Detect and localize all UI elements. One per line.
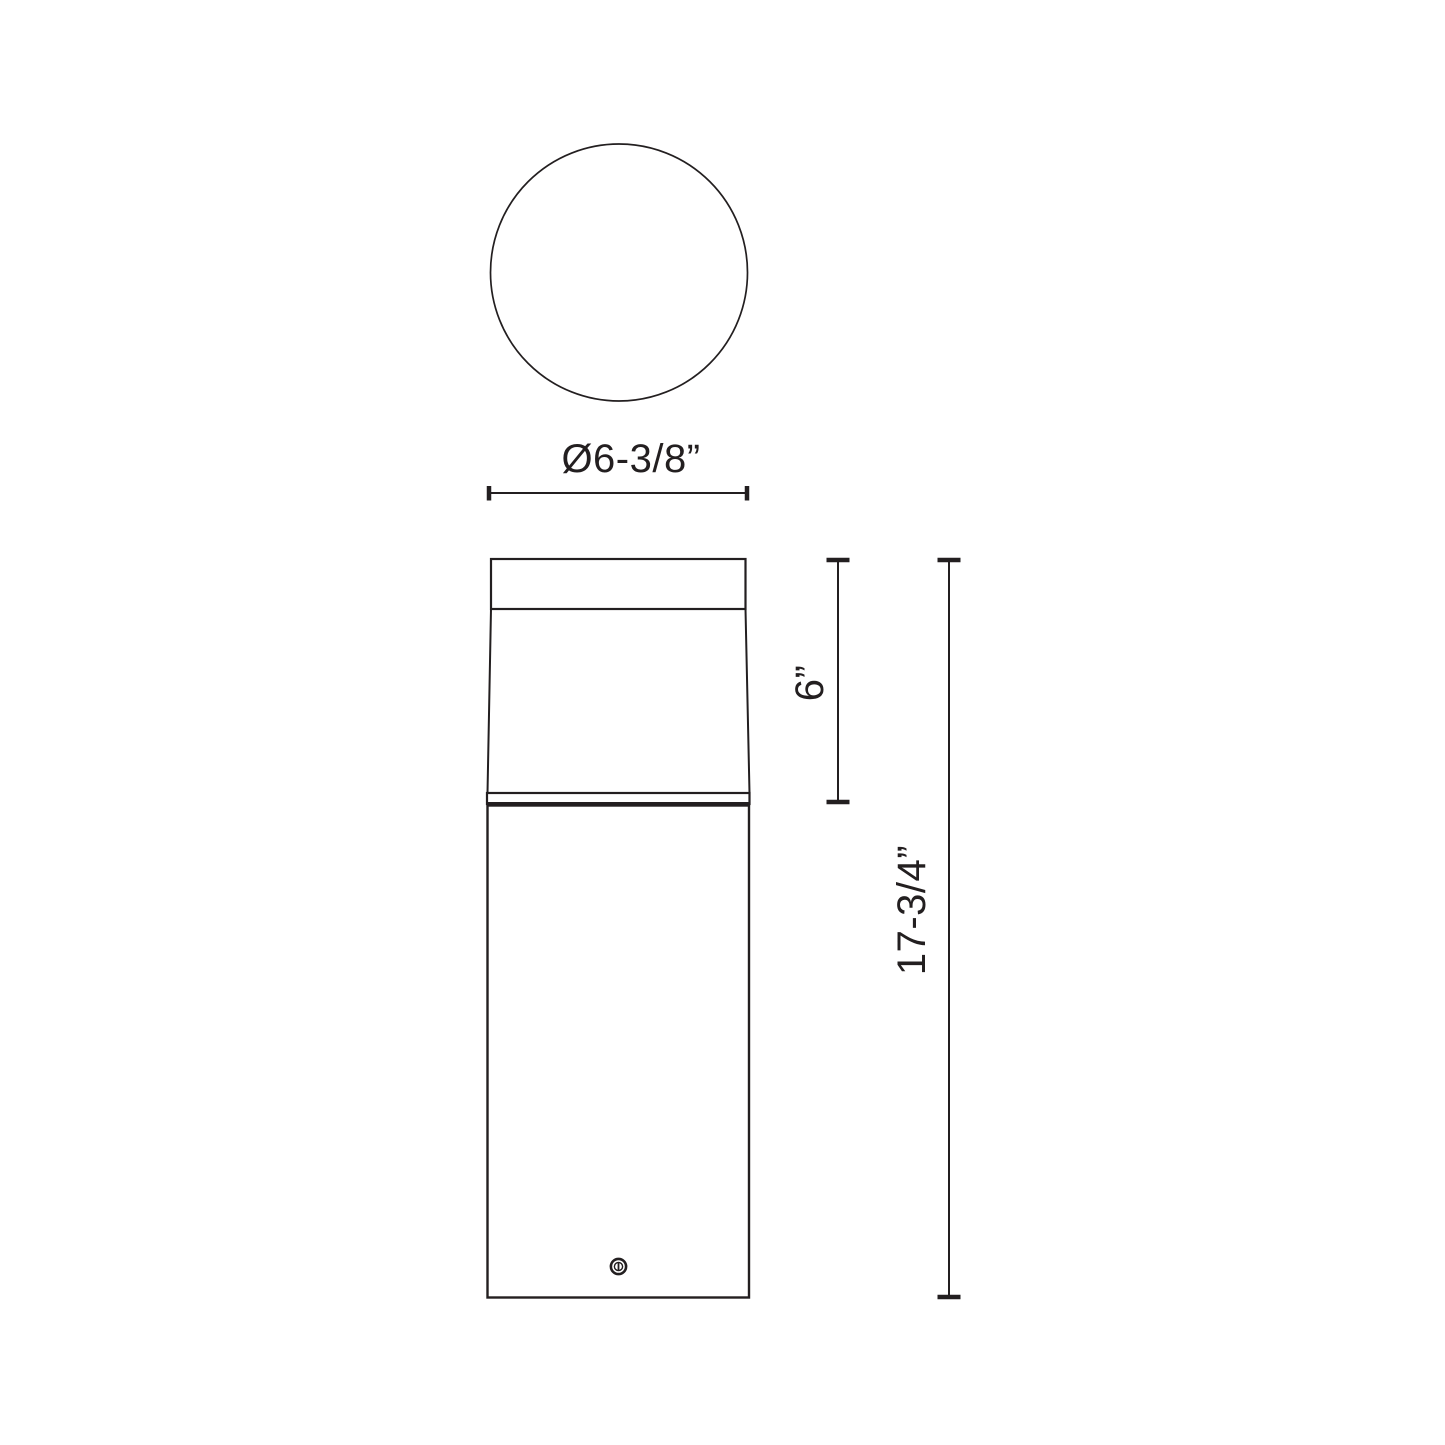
diameter-dimension: Ø6-3/8” — [489, 437, 747, 501]
side-view — [487, 559, 750, 1298]
top-view — [491, 144, 748, 401]
bollard-dimension-drawing: Ø6-3/8” 6 — [0, 0, 1445, 1445]
side-view-body — [488, 806, 750, 1298]
set-screw-icon — [611, 1259, 626, 1274]
top-view-outline-circle — [491, 144, 748, 401]
spec-drawing-page: Ø6-3/8” 6 — [0, 0, 1445, 1445]
overall-height-dimension-label: 17-3/4” — [890, 845, 934, 975]
overall-height-dimension: 17-3/4” — [890, 560, 961, 1297]
side-view-diffuser — [488, 609, 750, 793]
head-height-dimension: 6” — [788, 560, 850, 802]
head-height-dimension-label: 6” — [788, 665, 832, 702]
diameter-dimension-label: Ø6-3/8” — [561, 437, 700, 481]
side-view-top-cap — [491, 559, 746, 609]
